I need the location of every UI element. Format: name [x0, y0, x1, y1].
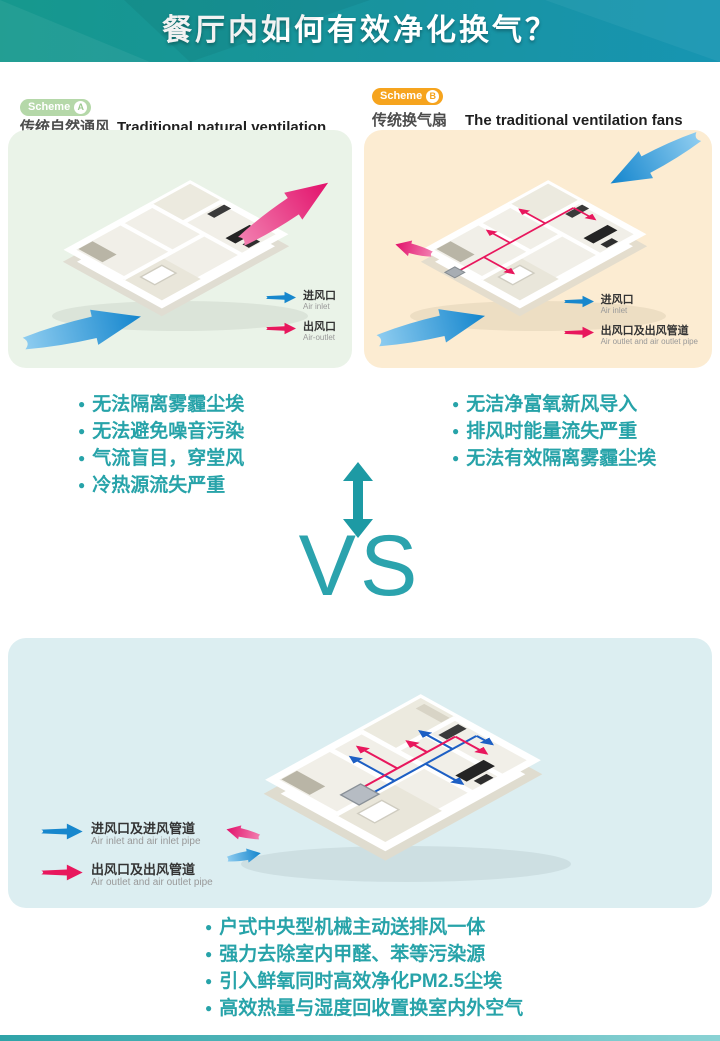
legend-row: 进风口 Air inlet — [564, 294, 698, 316]
bullet-item: 强力去除室内甲醛、苯等污染源 — [205, 941, 523, 968]
header-banner: 餐厅内如何有效净化换气？ — [0, 0, 720, 62]
legend-row: 进风口及进风管道 Air inlet and air inlet pipe — [40, 822, 213, 848]
infographic-page: 餐厅内如何有效净化换气？ Scheme A 传统自然通风 Traditional… — [0, 0, 720, 1041]
bullet-item: 气流盲目，穿堂风 — [78, 445, 244, 472]
bullet-item: 无法避免噪音污染 — [78, 418, 244, 445]
vs-label: VS — [0, 520, 720, 612]
bullet-item: 引入鲜氧同时高效净化PM2.5尘埃 — [205, 968, 523, 995]
scheme-a-legend: 进风口 Air inlet 出风口 Air-outlet — [266, 290, 336, 352]
scheme-c-legend: 进风口及进风管道 Air inlet and air inlet pipe 出风… — [40, 822, 213, 904]
house-illustration-c — [158, 652, 648, 904]
legend-label-zh: 进风口及进风管道 — [91, 822, 201, 836]
legend-label-zh: 出风口及出风管道 — [91, 863, 213, 877]
legend-label-en: Air outlet and air outlet pipe — [91, 877, 213, 889]
scheme-b-badge: Scheme B — [372, 88, 443, 105]
scheme-a-badge: Scheme A — [20, 99, 91, 116]
air-inlet-arrow-icon — [40, 823, 84, 840]
legend-row: 进风口 Air inlet — [266, 290, 336, 312]
legend-label-zh: 进风口 — [601, 294, 634, 306]
legend-label-en: Air inlet — [303, 302, 336, 312]
legend-row: 出风口及出风管道 Air outlet and air outlet pipe — [564, 325, 698, 347]
legend-row: 出风口 Air-outlet — [266, 321, 336, 343]
air-inlet-arrow-icon — [266, 291, 296, 304]
scheme-b-badge-letter: B — [426, 90, 439, 103]
legend-label-en: Air-outlet — [303, 333, 336, 343]
air-outlet-arrow-icon — [564, 326, 594, 339]
scheme-c-bullet-list: 户式中央型机械主动送排风一体 强力去除室内甲醛、苯等污染源 引入鲜氧同时高效净化… — [205, 914, 523, 1022]
air-inlet-arrow-top — [603, 130, 706, 197]
scheme-a-badge-letter: A — [74, 101, 87, 114]
scheme-c-illustration-panel: 进风口及进风管道 Air inlet and air inlet pipe 出风… — [8, 638, 712, 908]
bullet-item: 高效热量与湿度回收置换室内外空气 — [205, 995, 523, 1022]
legend-label-zh: 出风口及出风管道 — [601, 325, 698, 337]
air-outlet-arrow-icon — [40, 864, 84, 881]
legend-label-en: Air inlet — [601, 306, 634, 316]
legend-label-en: Air inlet and air inlet pipe — [91, 836, 201, 848]
scheme-b-bullet-list: 无洁净富氧新风导入 排风时能量流失严重 无法有效隔离雾霾尘埃 — [452, 391, 656, 472]
footer-bar — [0, 1035, 720, 1041]
scheme-b-title-zh: 传统换气扇 — [372, 109, 447, 130]
legend-label-zh: 出风口 — [303, 321, 336, 333]
bullet-item: 排风时能量流失严重 — [452, 418, 656, 445]
scheme-b-illustration-panel: 进风口 Air inlet 出风口及出风管道 Air outlet and ai… — [364, 130, 712, 368]
legend-label-en: Air outlet and air outlet pipe — [601, 337, 698, 347]
bullet-item: 无法有效隔离雾霾尘埃 — [452, 445, 656, 472]
bullet-item: 冷热源流失严重 — [78, 472, 244, 499]
scheme-b-badge-label: Scheme — [380, 88, 422, 105]
scheme-a-badge-label: Scheme — [28, 99, 70, 116]
bullet-item: 无洁净富氧新风导入 — [452, 391, 656, 418]
bullet-item: 无法隔离雾霾尘埃 — [78, 391, 244, 418]
scheme-a-illustration-panel: 进风口 Air inlet 出风口 Air-outlet — [8, 130, 352, 368]
scheme-a-bullet-list: 无法隔离雾霾尘埃 无法避免噪音污染 气流盲目，穿堂风 冷热源流失严重 — [78, 391, 244, 499]
scheme-b-legend: 进风口 Air inlet 出风口及出风管道 Air outlet and ai… — [564, 294, 698, 356]
bullet-item: 户式中央型机械主动送排风一体 — [205, 914, 523, 941]
outdoor-exhaust-arrow — [225, 822, 261, 844]
scheme-b-title-en: The traditional ventilation fans — [465, 112, 683, 129]
legend-row: 出风口及出风管道 Air outlet and air outlet pipe — [40, 863, 213, 889]
air-outlet-arrow-icon — [266, 322, 296, 335]
air-inlet-arrow-icon — [564, 295, 594, 308]
scheme-b-heading: 传统换气扇 The traditional ventilation fans — [372, 109, 683, 130]
legend-label-zh: 进风口 — [303, 290, 336, 302]
